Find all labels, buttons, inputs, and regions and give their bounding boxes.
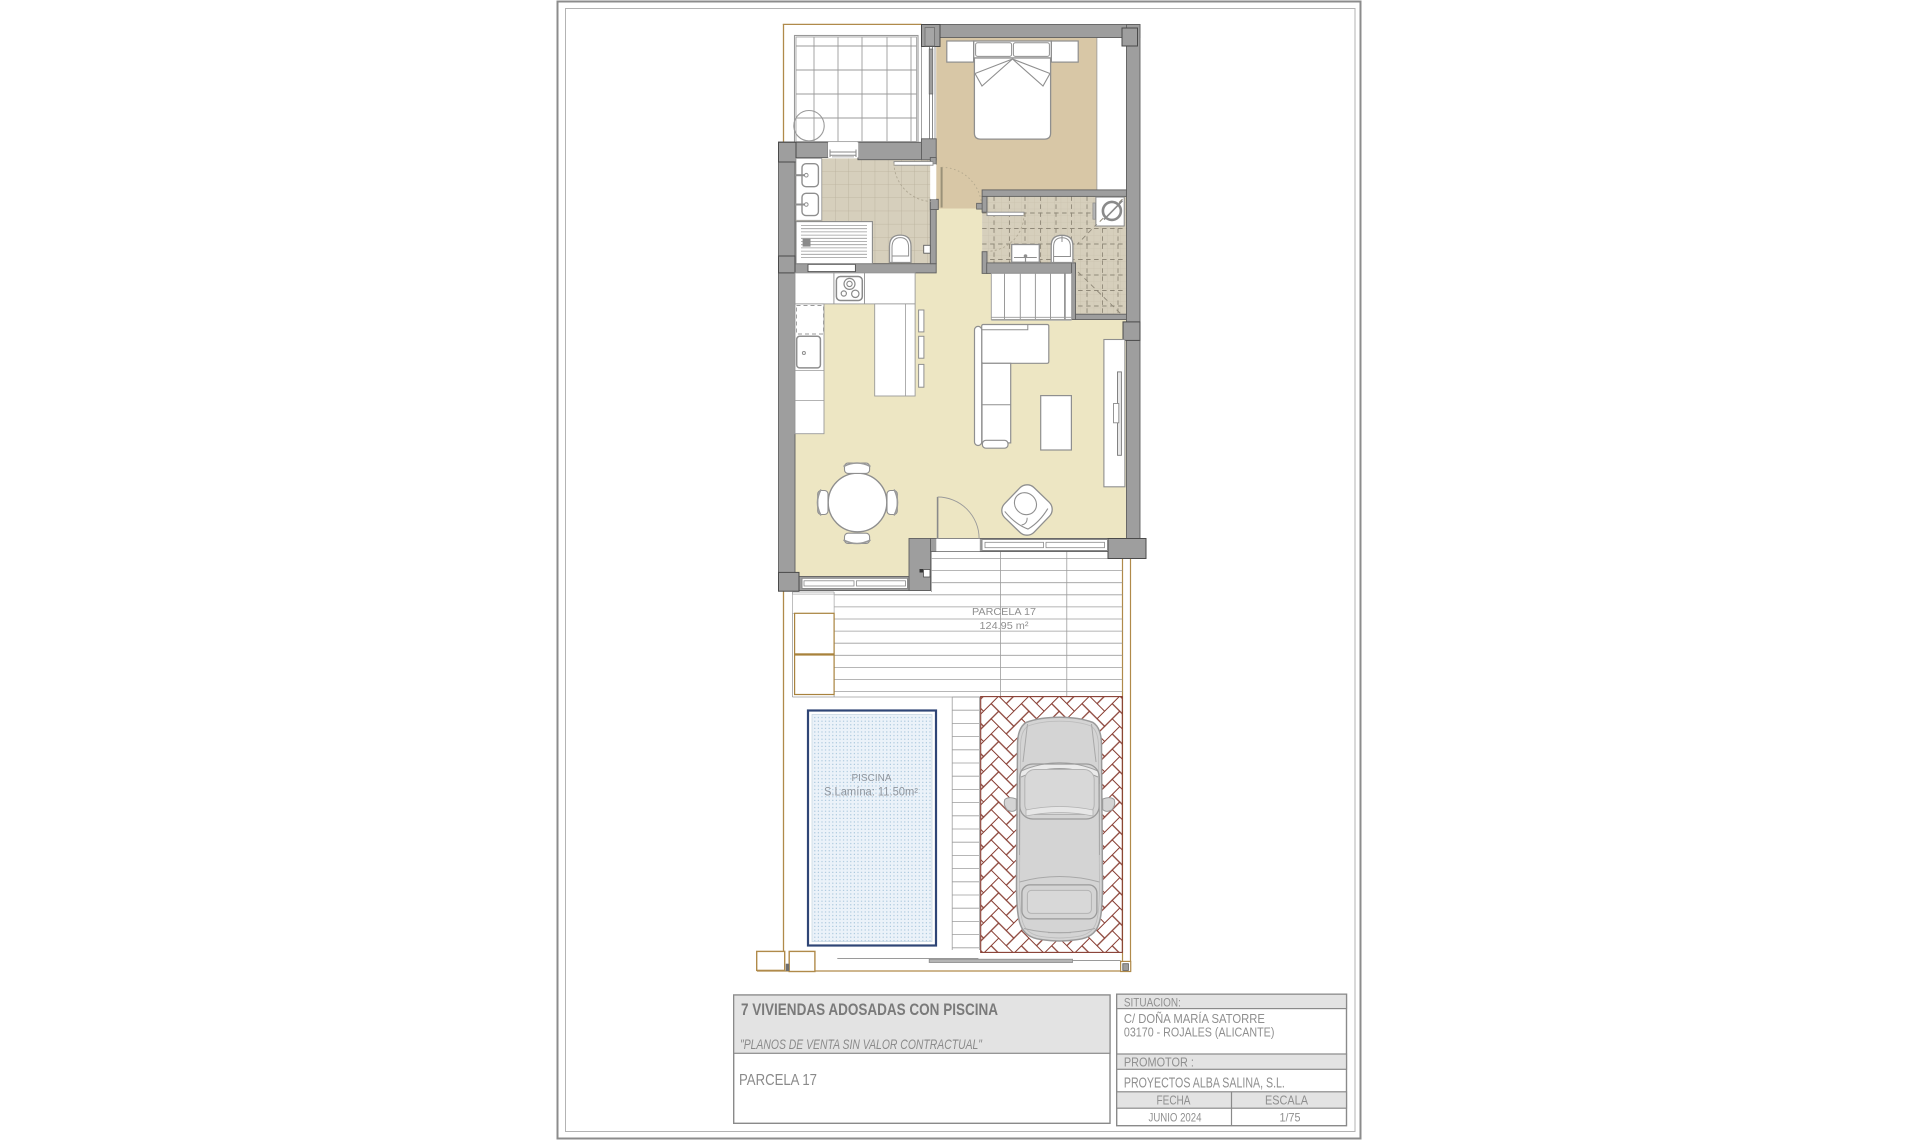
svg-text:PROMOTOR :: PROMOTOR : — [1124, 1056, 1194, 1070]
svg-text:"PLANOS DE VENTA SIN VALOR CON: "PLANOS DE VENTA SIN VALOR CONTRACTUAL" — [740, 1036, 983, 1052]
svg-text:JUNIO 2024: JUNIO 2024 — [1149, 1110, 1202, 1124]
svg-text:PROYECTOS ALBA SALINA, S.L.: PROYECTOS ALBA SALINA, S.L. — [1124, 1075, 1285, 1091]
svg-text:03170 - ROJALES (ALICANTE): 03170 - ROJALES (ALICANTE) — [1124, 1025, 1275, 1040]
svg-text:1/75: 1/75 — [1280, 1110, 1301, 1124]
svg-text:PARCELA 17: PARCELA 17 — [739, 1072, 817, 1089]
svg-text:124.95 m²: 124.95 m² — [980, 620, 1030, 632]
svg-text:FECHA: FECHA — [1157, 1094, 1192, 1108]
svg-text:SITUACION:: SITUACION: — [1124, 995, 1181, 1009]
svg-text:PARCELA 17: PARCELA 17 — [972, 606, 1036, 618]
svg-text:PISCINA: PISCINA — [852, 772, 892, 784]
svg-text:S.Lamína: 11.50m²: S.Lamína: 11.50m² — [824, 786, 918, 798]
svg-text:ESCALA: ESCALA — [1265, 1094, 1309, 1108]
svg-text:7 VIVIENDAS ADOSADAS CON PISCI: 7 VIVIENDAS ADOSADAS CON PISCINA — [741, 1000, 998, 1019]
